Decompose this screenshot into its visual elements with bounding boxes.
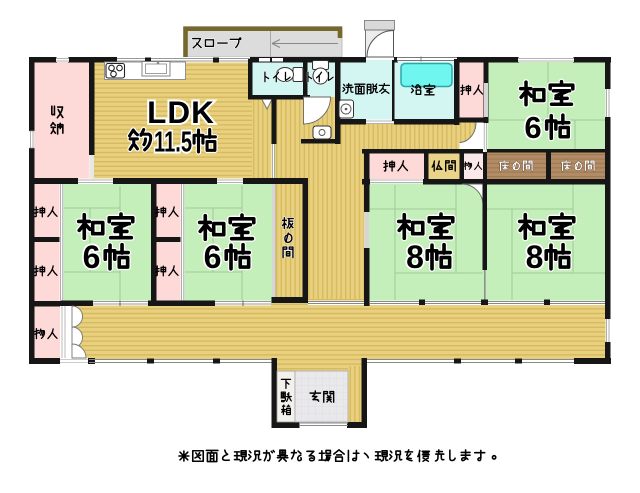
svg-text:6: 6 xyxy=(524,110,541,145)
svg-text:11.5: 11.5 xyxy=(154,127,192,159)
svg-text:LDK: LDK xyxy=(147,94,215,130)
svg-text:8: 8 xyxy=(526,239,544,275)
svg-text:6: 6 xyxy=(83,239,101,275)
svg-text:6: 6 xyxy=(204,239,222,275)
svg-text:8: 8 xyxy=(406,239,424,275)
